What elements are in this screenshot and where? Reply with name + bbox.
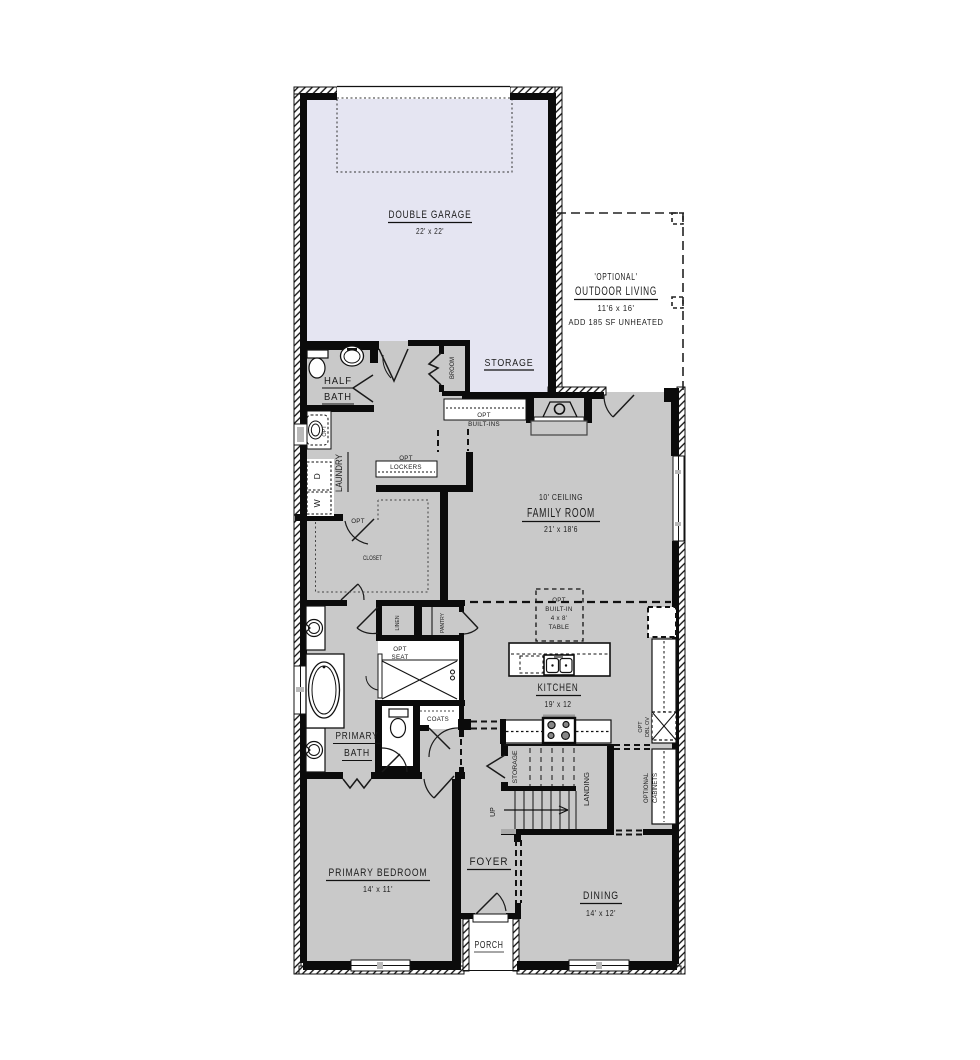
svg-text:BUILT-IN: BUILT-IN	[545, 606, 572, 613]
svg-text:D: D	[312, 473, 322, 480]
svg-text:STORAGE: STORAGE	[485, 357, 534, 369]
svg-text:CLOSET: CLOSET	[363, 555, 382, 562]
svg-text:LOCKERS: LOCKERS	[390, 464, 422, 471]
svg-text:OPT: OPT	[552, 597, 566, 604]
svg-text:BATH: BATH	[344, 747, 370, 759]
svg-text:HALF: HALF	[324, 375, 352, 387]
svg-text:COATS: COATS	[427, 716, 449, 723]
svg-text:FOYER: FOYER	[470, 856, 509, 868]
svg-text:OPT: OPT	[351, 518, 365, 525]
svg-text:PRIMARY: PRIMARY	[336, 730, 379, 742]
svg-text:UP: UP	[490, 807, 497, 817]
svg-text:21' x 18'6: 21' x 18'6	[544, 524, 578, 534]
svg-text:CABINETS: CABINETS	[653, 773, 659, 803]
svg-text:PRIMARY BEDROOM: PRIMARY BEDROOM	[329, 867, 428, 879]
svg-text:LINEN: LINEN	[395, 616, 401, 631]
svg-text:14' x 11': 14' x 11'	[363, 884, 393, 894]
svg-text:OPT: OPT	[322, 425, 328, 437]
svg-text:KITCHEN: KITCHEN	[538, 682, 579, 694]
svg-text:OPT: OPT	[393, 646, 407, 653]
svg-text:DINING: DINING	[583, 890, 619, 902]
svg-text:PANTRY: PANTRY	[440, 613, 446, 633]
svg-text:BATH: BATH	[324, 391, 352, 403]
svg-text:OPT: OPT	[638, 721, 644, 733]
svg-text:W: W	[312, 499, 322, 508]
svg-text:DOUBLE GARAGE: DOUBLE GARAGE	[389, 209, 472, 221]
svg-text:OPTIONAL: OPTIONAL	[644, 772, 650, 803]
svg-text:TABLE: TABLE	[549, 624, 570, 631]
svg-text:LAUNDRY: LAUNDRY	[334, 454, 344, 492]
svg-text:BUILT-INS: BUILT-INS	[468, 421, 500, 428]
svg-text:4 x 8': 4 x 8'	[551, 615, 567, 622]
svg-text:BROOM: BROOM	[449, 357, 456, 379]
svg-text:11'6 x 16': 11'6 x 16'	[598, 303, 635, 313]
svg-text:STORAGE: STORAGE	[512, 750, 519, 784]
svg-text:DBL OV: DBL OV	[645, 717, 651, 737]
svg-text:19' x 12: 19' x 12	[545, 699, 572, 709]
svg-text:SEAT: SEAT	[392, 654, 409, 661]
svg-text:LANDING: LANDING	[584, 772, 591, 806]
svg-text:FAMILY ROOM: FAMILY ROOM	[527, 506, 595, 520]
svg-text:10' CEILING: 10' CEILING	[539, 492, 583, 502]
svg-text:OPT: OPT	[477, 412, 491, 419]
svg-text:14' x 12': 14' x 12'	[586, 908, 616, 918]
svg-text:ADD 185 SF UNHEATED: ADD 185 SF UNHEATED	[569, 317, 664, 327]
svg-text:OUTDOOR LIVING: OUTDOOR LIVING	[575, 284, 657, 298]
svg-text:PORCH: PORCH	[475, 939, 504, 951]
svg-text:22' x 22': 22' x 22'	[416, 226, 444, 236]
svg-text:'OPTIONAL': 'OPTIONAL'	[595, 271, 638, 283]
svg-text:OPT: OPT	[399, 455, 413, 462]
